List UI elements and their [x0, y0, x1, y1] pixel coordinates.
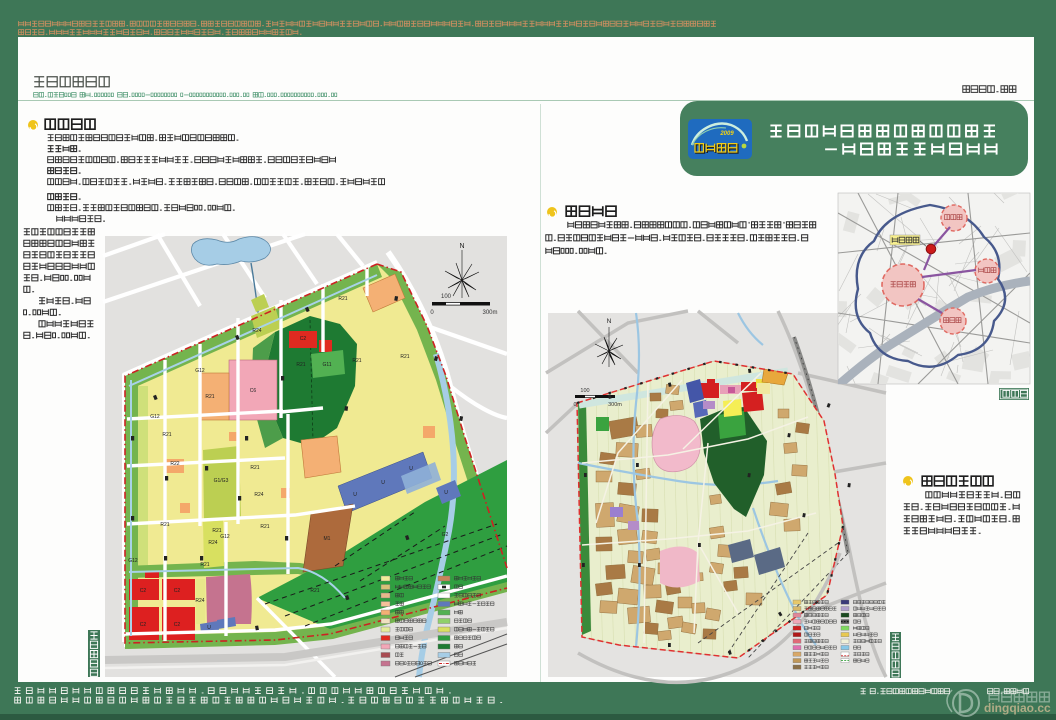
- svg-text:100: 100: [580, 388, 589, 394]
- svg-text:G12: G12: [220, 534, 230, 540]
- svg-text:N: N: [607, 318, 612, 325]
- svg-text:R21: R21: [400, 354, 409, 360]
- svg-text:G1/G3: G1/G3: [214, 478, 229, 484]
- svg-text:G12: G12: [128, 558, 138, 564]
- svg-text:C2: C2: [174, 622, 181, 628]
- svg-text:R24: R24: [208, 540, 217, 546]
- svg-text:U: U: [409, 466, 413, 472]
- svg-text:C2: C2: [140, 588, 147, 594]
- svg-text:2009: 2009: [719, 131, 734, 137]
- svg-text:G2: G2: [442, 532, 449, 538]
- svg-text:R22: R22: [170, 461, 179, 467]
- svg-text:M1: M1: [324, 536, 331, 542]
- svg-text:300m: 300m: [482, 310, 497, 316]
- svg-text:R24: R24: [252, 328, 261, 334]
- svg-text:C2: C2: [174, 588, 181, 594]
- svg-text:N: N: [459, 243, 464, 250]
- svg-text:G12: G12: [195, 368, 205, 374]
- svg-text:R21: R21: [296, 362, 305, 368]
- svg-text:R21: R21: [338, 296, 347, 302]
- svg-text:300m: 300m: [608, 402, 622, 408]
- svg-text:R21: R21: [310, 588, 319, 594]
- svg-text:dingqiao.cc: dingqiao.cc: [984, 701, 1051, 715]
- svg-text:R21: R21: [352, 358, 361, 364]
- svg-text:U: U: [353, 492, 357, 498]
- svg-text:G11: G11: [322, 362, 331, 368]
- svg-text:C6: C6: [250, 388, 257, 394]
- svg-text:R21: R21: [200, 562, 209, 568]
- svg-text:R21: R21: [260, 524, 269, 530]
- svg-text:100: 100: [441, 294, 452, 300]
- svg-text:G12: G12: [150, 414, 160, 420]
- svg-text:U: U: [444, 490, 448, 496]
- svg-text:C2: C2: [140, 622, 147, 628]
- svg-text:R24: R24: [254, 492, 263, 498]
- svg-text:R21: R21: [162, 432, 171, 438]
- svg-text:R21: R21: [250, 465, 259, 471]
- svg-text:R21: R21: [205, 394, 214, 400]
- svg-text:U: U: [207, 625, 211, 631]
- svg-text:R21: R21: [160, 522, 169, 528]
- svg-text:U: U: [381, 480, 385, 486]
- svg-text:C2: C2: [300, 336, 307, 342]
- svg-text:0: 0: [573, 402, 576, 408]
- svg-text:R24: R24: [195, 598, 204, 604]
